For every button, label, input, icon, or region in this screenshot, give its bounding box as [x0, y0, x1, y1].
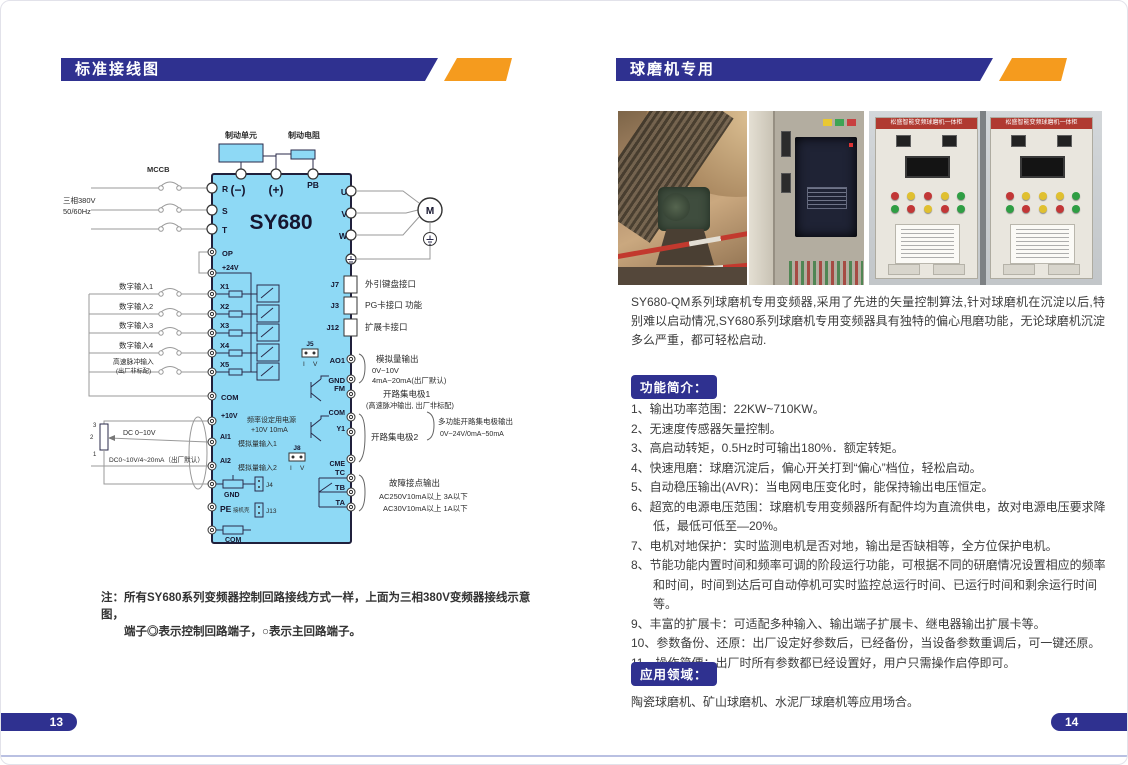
ball-mill-motor-face — [662, 193, 690, 221]
button-red — [941, 205, 949, 213]
button-red — [907, 205, 915, 213]
button-green — [1072, 192, 1080, 200]
dc-0-10v-label: DC 0~10V — [123, 430, 156, 437]
button-red — [924, 192, 932, 200]
spec-plate — [1010, 224, 1075, 264]
terminal-ai1: AI1 — [220, 434, 231, 441]
terminal-ta: TA — [336, 498, 346, 507]
cabinet-component — [781, 131, 791, 157]
multi-oc-range: 0V~24V/0mA~50mA — [440, 431, 504, 438]
brake-unit-box — [219, 144, 263, 162]
multi-oc-label: 多功能开路集电极输出 — [438, 416, 513, 426]
wiring-diagram: MCCB 三相380V 50/60Hz 数字输入1 数字输入2 数字输入3 数字… — [61, 126, 561, 586]
panel-meter — [896, 135, 911, 147]
page-number-left: 13 — [1, 713, 77, 731]
terminal-10v: +10V — [221, 413, 238, 420]
terminal-com: COM — [221, 393, 239, 402]
pot-terminal-2: 2 — [90, 435, 94, 441]
button-yellow — [1039, 205, 1047, 213]
brake-resistor-box — [291, 150, 315, 159]
button-green — [957, 192, 965, 200]
pot-terminal-3: 3 — [93, 423, 97, 429]
jumper-j13: J13 — [266, 508, 277, 515]
factory-floor — [618, 267, 747, 285]
cabinet-divider — [980, 111, 986, 285]
fault-output-label: 故障接点输出 — [389, 478, 440, 488]
button-green — [1006, 205, 1014, 213]
port-j3: J3 — [331, 301, 339, 310]
supply-freq-label: 50/60Hz — [63, 207, 91, 216]
terminal-com3: COM — [329, 410, 346, 417]
port-j7: J7 — [331, 280, 339, 289]
panel-display — [1020, 156, 1065, 178]
wiring-note-line2: 端子◎表示控制回路端子，○表示主回路端子。 — [101, 624, 541, 641]
pg-port-label: PG卡接口 功能 — [365, 300, 423, 310]
page-number-right: 14 — [1051, 713, 1127, 731]
terminal-x2: X2 — [220, 302, 229, 311]
feature-item: 3、高启动转矩，0.5Hz时可输出180%．额定转矩。 — [631, 439, 1109, 459]
ai1-label: 模拟量输入1 — [238, 439, 277, 448]
terminal-y1: Y1 — [336, 426, 345, 433]
pe-note: 接机壳 — [233, 506, 250, 514]
feature-item: 4、快速甩磨：球磨沉淀后，偏心开关打到“偏心”档位，轻松启动。 — [631, 459, 1109, 479]
feature-item: 7、电机对地保护：实时监测电机是否对地，输出是否缺相等，全方位保护电机。 — [631, 537, 1109, 557]
digital-input-4-label: 数字输入4 — [119, 340, 153, 350]
terminal-r: R — [222, 184, 228, 194]
inverter-model: SY680 — [249, 211, 312, 234]
dc-minus-terminal: (−) — [231, 183, 246, 197]
panel-display — [905, 156, 950, 178]
terminal-u: U — [341, 187, 347, 197]
terminal-com-bottom: COM — [225, 537, 242, 544]
terminal-fm: FM — [334, 384, 345, 393]
panel-meter — [1057, 135, 1072, 147]
freq-supply-label1: 频率设定用电源 — [247, 415, 296, 424]
freq-supply-label2: +10V 10mA — [251, 427, 288, 434]
button-yellow — [1056, 192, 1064, 200]
fault-rating-2: AC30V10mA以上 1A以下 — [383, 504, 468, 513]
supply-wires: MCCB 三相380V 50/60Hz — [63, 165, 207, 231]
button-green — [957, 205, 965, 213]
indicator-red — [847, 119, 856, 126]
button-red — [1022, 205, 1030, 213]
button-yellow — [941, 192, 949, 200]
terminal-w: W — [339, 231, 348, 241]
j5-v-label: V — [313, 361, 318, 368]
brake-unit-label: 制动单元 — [225, 130, 257, 140]
cabinet-vent — [1003, 264, 1035, 275]
spec-plate — [895, 224, 960, 264]
supply-voltage-label: 三相380V — [63, 195, 96, 205]
feature-item: 10、参数备份、还原：出厂设定好参数后，已经备份，当设备参数重调后，可一键还原。 — [631, 634, 1109, 654]
indicator-green — [835, 119, 844, 126]
terminal-tb: TB — [335, 483, 346, 492]
fault-rating-1: AC250V10mA以上 3A以下 — [379, 492, 468, 501]
button-red — [1056, 205, 1064, 213]
terminal-cme: CME — [329, 461, 345, 468]
applications-section-label: 应用领域： — [631, 662, 717, 686]
button-green — [1072, 205, 1080, 213]
button-yellow — [924, 205, 932, 213]
photo-ball-mill — [618, 111, 747, 285]
footer-rule — [1, 755, 1127, 757]
terminal-24v: +24V — [222, 265, 239, 272]
button-green — [891, 205, 899, 213]
terminal-pe: PE — [220, 504, 232, 514]
port-j12: J12 — [326, 323, 339, 332]
expansion-port-label: 扩展卡接口 — [365, 322, 408, 332]
terminal-op: OP — [222, 249, 233, 258]
cabinet-wiring — [789, 261, 863, 285]
analog-out-range2: 4mA~20mA(出厂默认) — [372, 375, 447, 385]
button-yellow — [1039, 192, 1047, 200]
terminal-t: T — [222, 225, 228, 235]
cabinet-vent — [1048, 264, 1080, 275]
terminal-s: S — [222, 206, 228, 216]
digital-input-wires: 数字输入1 数字输入2 数字输入3 数字输入4 高速脉冲输入 (出厂非标配) — [89, 281, 208, 396]
fault-relay-output: TC TB TA 故障接点输出 AC250V10mA以上 3A以下 AC30V1… — [319, 468, 468, 513]
button-red — [1006, 192, 1014, 200]
output-motor: U V W M — [339, 186, 442, 264]
banner-orange-accent — [999, 58, 1067, 81]
jumper-j5: J5 — [306, 341, 314, 348]
inverter-led — [849, 143, 853, 147]
j8-v-label: V — [300, 465, 305, 472]
oc2-label: 开路集电极2 — [371, 432, 419, 442]
button-yellow — [1022, 192, 1030, 200]
ai2-label: 模拟量输入2 — [238, 463, 277, 472]
cabinet-door — [749, 111, 775, 285]
intro-paragraph: SY680-QM系列球磨机专用变频器,采用了先进的矢量控制算法,针对球磨机在沉淀… — [631, 293, 1105, 350]
jumper-j8: J8 — [293, 445, 301, 452]
feature-item: 9、丰富的扩展卡：可适配多种输入、输出端子扩展卡、继电器输出扩展卡等。 — [631, 615, 1109, 635]
pulse-input-label: 高速脉冲输入 — [113, 357, 154, 366]
left-section-banner: 标准接线图 — [61, 58, 512, 81]
cabinet-vent — [933, 264, 965, 275]
feature-item: 5、自动稳压输出(AVR)：当电网电压变化时，能保持输出电压恒定。 — [631, 478, 1109, 498]
catalog-spread: 标准接线图 MCCB 三相380V 50/60Hz 数字输入1 数字输入2 — [0, 0, 1128, 765]
terminal-x4: X4 — [220, 341, 230, 350]
dc-range-label: DC0~10V/4~20mA（出厂默认） — [109, 455, 204, 464]
keyboard-port-label: 外引键盘接口 — [365, 279, 416, 289]
cabinet-vent — [888, 264, 920, 275]
feature-item: 2、无速度传感器矢量控制。 — [631, 420, 1109, 440]
control-cabinet: 松盛智能变频球磨机一体柜 — [990, 117, 1093, 279]
left-page-title: 标准接线图 — [61, 58, 438, 81]
panel-meter — [1011, 135, 1026, 147]
brake-resistor-label: 制动电阻 — [288, 130, 320, 140]
right-section-banner: 球磨机专用 — [616, 58, 1067, 81]
analog-input-wires: 3 2 1 DC 0~10V DC0~10V/4~20mA（出厂默认） — [90, 417, 208, 489]
analog-out-label: 模拟量输出 — [376, 354, 419, 364]
jumper-j4: J4 — [266, 482, 273, 489]
banner-orange-accent — [444, 58, 512, 81]
cabinet-banner: 松盛智能变频球磨机一体柜 — [876, 118, 977, 129]
pulse-input-note: (出厂非标配) — [116, 367, 151, 375]
photo-control-cabinets: 松盛智能变频球磨机一体柜 松盛智能变频球磨机一体柜 — [869, 111, 1102, 285]
cabinet-component — [781, 173, 791, 193]
panel-buttons — [889, 192, 967, 213]
digital-input-1-label: 数字输入1 — [119, 281, 153, 291]
pb-terminal: PB — [307, 180, 319, 190]
photo-cabinet-inverter — [749, 111, 864, 285]
right-page-title: 球磨机专用 — [616, 58, 993, 81]
mccb-label: MCCB — [147, 165, 170, 174]
control-cabinet: 松盛智能变频球磨机一体柜 — [875, 117, 978, 279]
terminal-tc: TC — [335, 468, 346, 477]
analog-out-range1: 0V~10V — [372, 366, 399, 375]
motor-label: M — [426, 206, 434, 217]
cabinet-banner: 松盛智能变频球磨机一体柜 — [991, 118, 1092, 129]
applications-text: 陶瓷球磨机、矿山球磨机、水泥厂球磨机等应用场合。 — [631, 693, 1105, 710]
j5-i-label: I — [303, 361, 305, 368]
oc1-note: (高速脉冲输出, 出厂非标配) — [366, 401, 454, 410]
button-yellow — [907, 192, 915, 200]
features-section-label: 功能简介： — [631, 375, 717, 399]
panel-meter — [942, 135, 957, 147]
feature-item: 6、超宽的电源电压范围：球磨机专用变频器所有配件均为直流供电，故对电源电压要求降… — [631, 498, 1109, 537]
wiring-note-line1: 注：所有SY680系列变频器控制回路接线方式一样，上面为三相380V变频器接线示… — [101, 590, 541, 624]
pot-terminal-1: 1 — [93, 452, 97, 458]
terminal-x5: X5 — [220, 360, 229, 369]
terminal-ao1: AO1 — [330, 356, 345, 365]
feature-item: 1、输出功率范围：22KW~710KW。 — [631, 400, 1109, 420]
j8-i-label: I — [290, 465, 292, 472]
digital-input-2-label: 数字输入2 — [119, 301, 153, 311]
feature-item: 8、节能功能内置时间和频率可调的阶段运行功能，可根据不同的研磨情况设置相应的频率… — [631, 556, 1109, 615]
terminal-v: V — [341, 209, 347, 219]
terminal-x3: X3 — [220, 321, 229, 330]
button-red — [891, 192, 899, 200]
indicator-yellow — [823, 119, 832, 126]
inverter-nameplate — [807, 187, 847, 209]
wiring-note: 注：所有SY680系列变频器控制回路接线方式一样，上面为三相380V变频器接线示… — [101, 590, 541, 641]
terminal-ai2: AI2 — [220, 458, 231, 465]
features-list: 1、输出功率范围：22KW~710KW。 2、无速度传感器矢量控制。 3、高启动… — [631, 400, 1109, 673]
oc1-label: 开路集电极1 — [383, 389, 431, 399]
digital-input-3-label: 数字输入3 — [119, 320, 153, 330]
panel-buttons — [1004, 192, 1082, 213]
terminal-gnd: GND — [224, 492, 240, 499]
terminal-x1: X1 — [220, 282, 229, 291]
dc-plus-terminal: (+) — [269, 183, 284, 197]
